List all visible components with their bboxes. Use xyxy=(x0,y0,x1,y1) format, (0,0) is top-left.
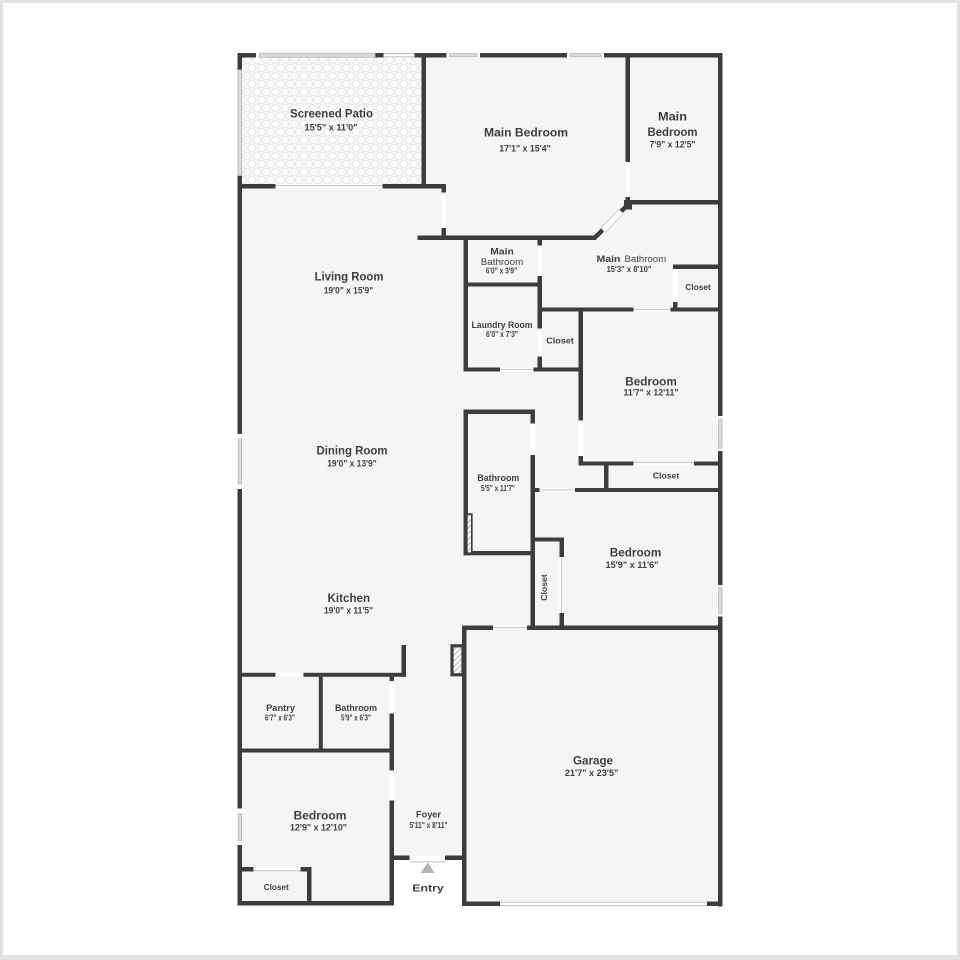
svg-text:6'0" x 3'9": 6'0" x 3'9" xyxy=(486,267,518,276)
svg-text:17'1" x 15'4": 17'1" x 15'4" xyxy=(499,143,551,153)
svg-text:Bathroom: Bathroom xyxy=(335,703,377,714)
svg-text:7'9" x 12'5": 7'9" x 12'5" xyxy=(650,140,696,150)
svg-text:Closet: Closet xyxy=(264,882,289,892)
svg-text:19'0" x 11'5": 19'0" x 11'5" xyxy=(324,606,373,616)
svg-text:5'9" x 6'3": 5'9" x 6'3" xyxy=(341,713,371,722)
svg-text:Dining Room: Dining Room xyxy=(317,443,388,457)
svg-text:Main: Main xyxy=(658,109,687,123)
svg-text:Bathroom: Bathroom xyxy=(625,254,667,265)
svg-text:Main Bedroom: Main Bedroom xyxy=(484,125,568,139)
svg-text:Bedroom: Bedroom xyxy=(648,125,698,139)
svg-text:Foyer: Foyer xyxy=(416,810,441,821)
svg-text:6'0" x 7'3": 6'0" x 7'3" xyxy=(486,330,518,339)
svg-text:Bedroom: Bedroom xyxy=(294,809,347,823)
svg-text:Main: Main xyxy=(597,254,621,265)
svg-text:Screened Patio: Screened Patio xyxy=(290,107,373,121)
svg-text:Bedroom: Bedroom xyxy=(610,545,662,559)
svg-text:Bathroom: Bathroom xyxy=(477,473,519,484)
svg-text:19'0" x 13'9": 19'0" x 13'9" xyxy=(327,459,377,469)
svg-text:Closet: Closet xyxy=(685,282,711,292)
svg-text:Kitchen: Kitchen xyxy=(328,591,371,605)
svg-text:21'7" x 23'5": 21'7" x 23'5" xyxy=(565,768,619,778)
svg-text:Closet: Closet xyxy=(539,574,549,601)
svg-text:Bedroom: Bedroom xyxy=(625,374,677,388)
svg-text:15'3" x 8'10": 15'3" x 8'10" xyxy=(607,265,652,274)
svg-text:Closet: Closet xyxy=(546,336,574,346)
svg-text:12'9" x 12'10": 12'9" x 12'10" xyxy=(290,822,347,832)
svg-text:5'5" x 11'7": 5'5" x 11'7" xyxy=(481,484,515,493)
svg-text:15'5" x 11'0": 15'5" x 11'0" xyxy=(305,123,358,133)
svg-text:5'11" x 8'11": 5'11" x 8'11" xyxy=(410,821,448,830)
svg-text:Pantry: Pantry xyxy=(266,703,296,714)
svg-text:Closet: Closet xyxy=(653,470,680,480)
svg-text:15'9" x 11'6": 15'9" x 11'6" xyxy=(606,560,659,570)
svg-text:Living Room: Living Room xyxy=(315,270,384,284)
svg-text:Garage: Garage xyxy=(573,753,613,767)
svg-text:11'7" x 12'11": 11'7" x 12'11" xyxy=(624,388,679,398)
svg-text:19'0" x 15'9": 19'0" x 15'9" xyxy=(324,286,374,296)
svg-text:6'7" x 6'3": 6'7" x 6'3" xyxy=(265,713,295,722)
svg-text:Entry: Entry xyxy=(412,884,444,895)
